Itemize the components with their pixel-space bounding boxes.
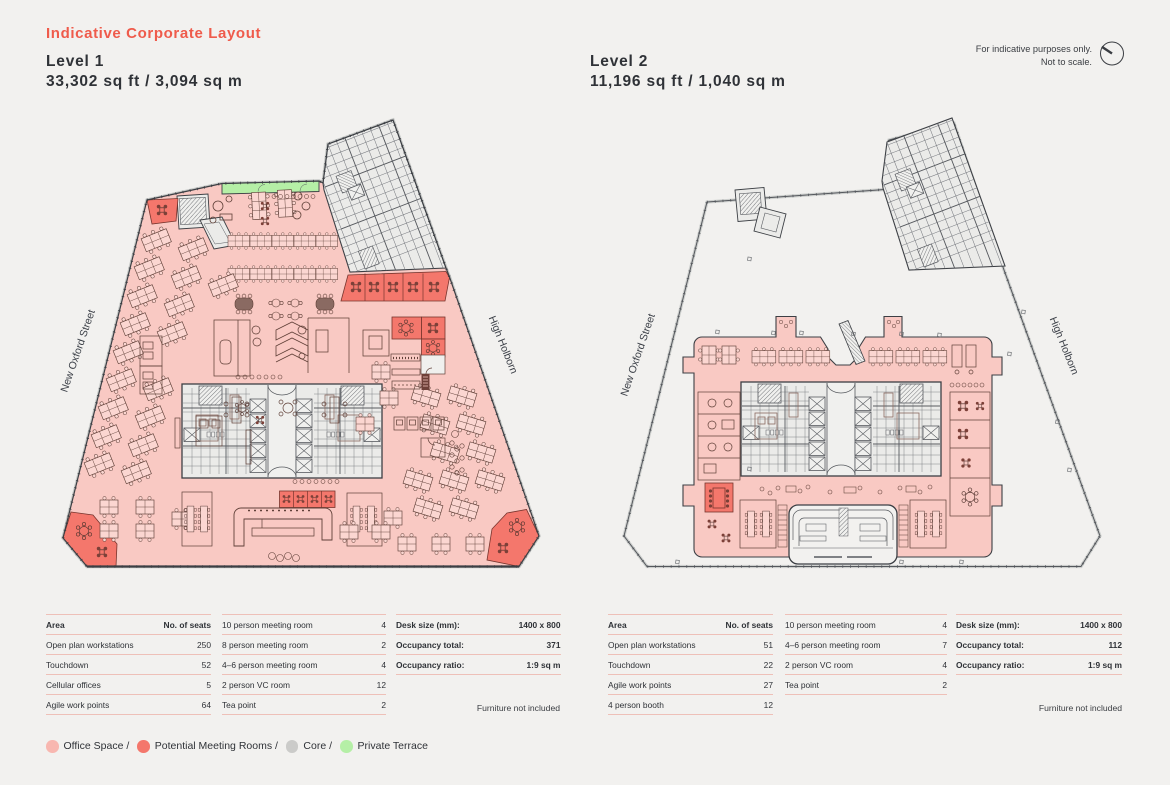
svg-text:High Holborn: High Holborn [1047, 315, 1081, 376]
svg-text:High Holborn: High Holborn [486, 314, 520, 375]
svg-text:New Oxford Street: New Oxford Street [58, 308, 97, 394]
svg-text:New Oxford Street: New Oxford Street [618, 312, 657, 398]
